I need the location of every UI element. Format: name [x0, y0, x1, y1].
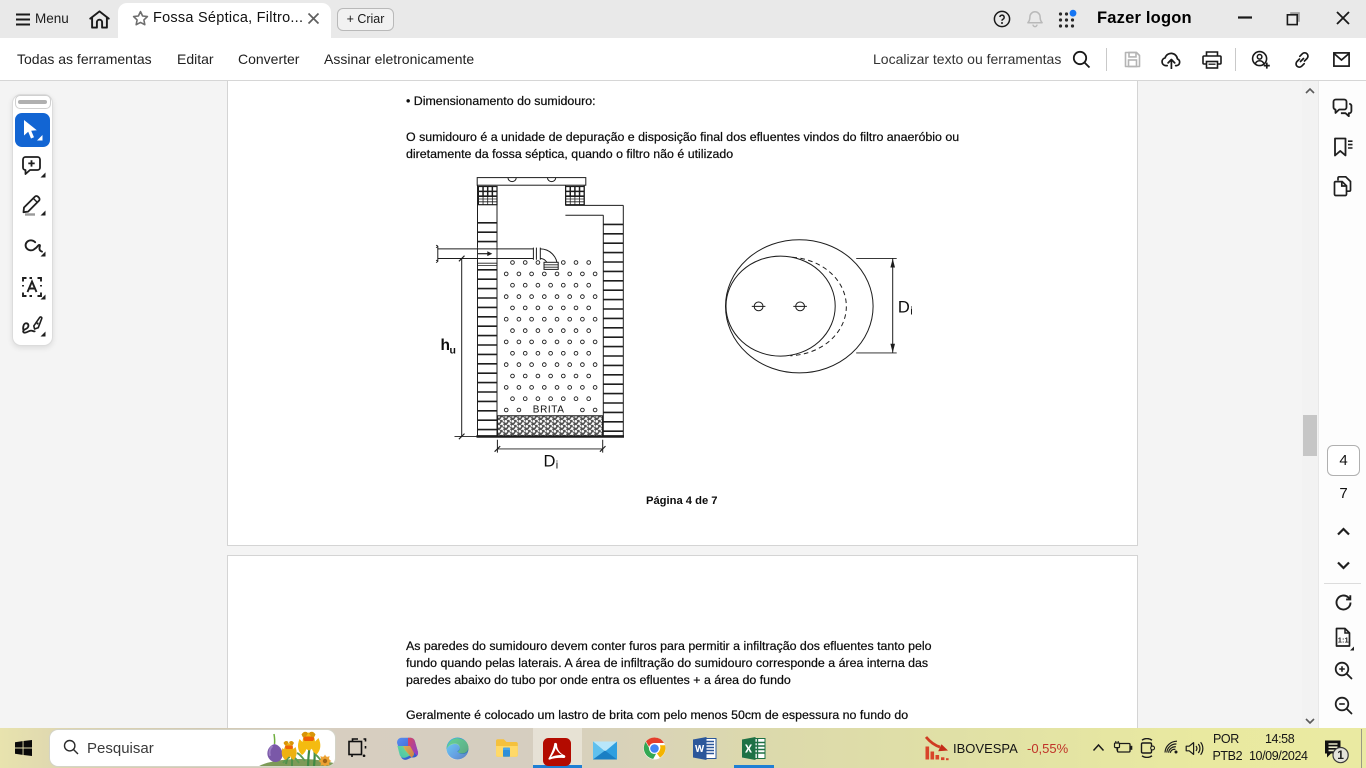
svg-text:1:1: 1:1 [1338, 636, 1349, 645]
svg-text:i: i [556, 460, 558, 472]
svg-text:u: u [450, 344, 456, 356]
svg-text:D: D [898, 298, 910, 316]
svg-text:BRITA: BRITA [533, 405, 565, 416]
svg-text:i: i [910, 305, 912, 317]
svg-text:D: D [544, 453, 556, 471]
svg-text:1: 1 [1337, 748, 1344, 762]
